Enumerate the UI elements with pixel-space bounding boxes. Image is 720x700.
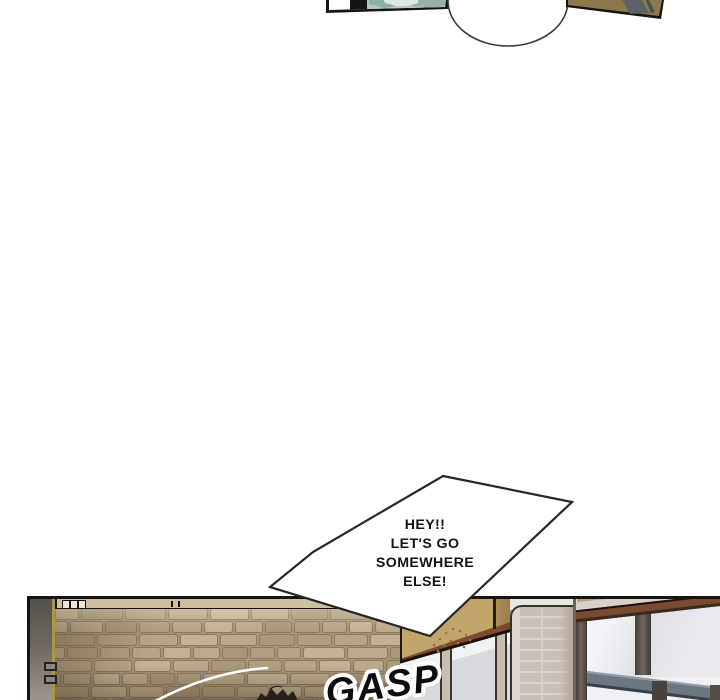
character-hair bbox=[256, 688, 298, 700]
bubble-line: LET'S GO bbox=[349, 535, 501, 554]
comic-page: GASP GASP HEY!! LET'S GO SOMEWHERE ELSE! bbox=[0, 0, 720, 700]
bubble-line: HEY!! bbox=[349, 516, 501, 535]
gasp-sfx: GASP bbox=[323, 657, 443, 700]
bubble-line: ELSE! bbox=[349, 573, 501, 592]
bubble-line: SOMEWHERE bbox=[349, 554, 501, 573]
motion-line bbox=[148, 668, 267, 700]
top-panel bbox=[0, 0, 720, 52]
hair-whisker bbox=[270, 686, 282, 689]
top-panel-black-block bbox=[350, 0, 367, 10]
speech-bubble-text: HEY!! LET'S GO SOMEWHERE ELSE! bbox=[349, 516, 501, 592]
speech-ellipse bbox=[448, 0, 568, 46]
